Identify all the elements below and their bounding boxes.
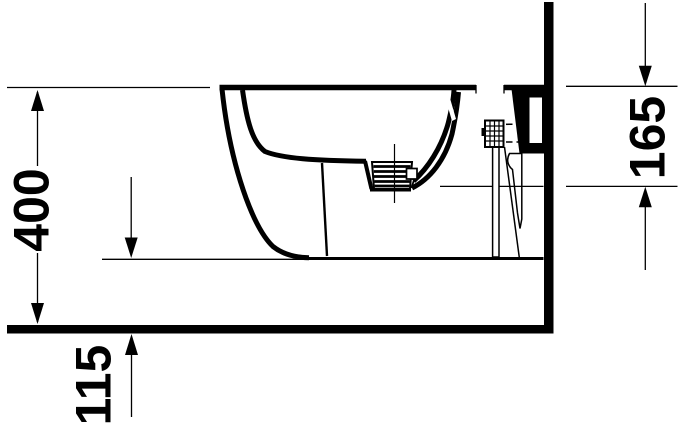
dimension-outlet-height: 165 bbox=[566, 3, 678, 270]
arrow-down-icon bbox=[639, 66, 652, 87]
drain-recess-left bbox=[365, 161, 372, 189]
bolt-tab bbox=[482, 128, 487, 136]
bowl-inner-front bbox=[243, 90, 367, 161]
bidet-profile bbox=[220, 85, 554, 259]
arrow-up-icon bbox=[639, 187, 652, 208]
dimension-label-165: 165 bbox=[620, 96, 676, 179]
outlet-detail-square bbox=[407, 169, 418, 180]
rim-gap-ticks bbox=[476, 85, 504, 94]
floor-section bbox=[7, 325, 554, 334]
pedestal-inner-line bbox=[322, 163, 327, 256]
arrow-up-icon bbox=[31, 90, 44, 111]
mounting-bolt bbox=[482, 121, 504, 148]
arrow-up-icon bbox=[125, 334, 138, 355]
fixing-cavity bbox=[530, 98, 543, 144]
front-outer-edge bbox=[222, 89, 309, 258]
fixing-rod bbox=[493, 147, 499, 257]
building-structure bbox=[7, 2, 554, 334]
dimension-label-400: 400 bbox=[4, 168, 60, 251]
arrow-down-icon bbox=[31, 303, 44, 324]
dimension-label-115: 115 bbox=[66, 345, 122, 426]
wall-section bbox=[544, 2, 554, 334]
bidet-elevation-drawing: 400 115 165 bbox=[0, 0, 680, 434]
arrow-down-icon bbox=[125, 238, 138, 259]
technical-drawing-canvas: 400 115 165 bbox=[0, 0, 680, 434]
dimension-overall-height: 400 bbox=[4, 88, 211, 325]
dimension-floor-clearance: 115 bbox=[66, 177, 544, 425]
